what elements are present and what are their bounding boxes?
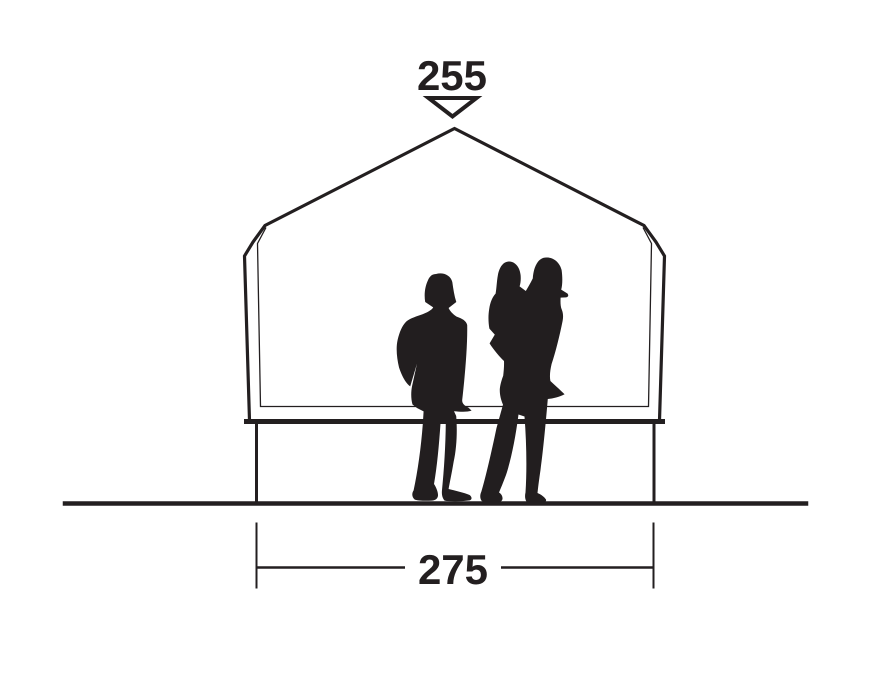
diagram-canvas: 255 275 [0, 0, 885, 682]
tent-dimension-diagram: 255 275 [0, 0, 885, 682]
width-dimension: 275 [257, 523, 654, 594]
family-silhouette [397, 257, 569, 502]
down-triangle-arrow-icon [429, 98, 477, 117]
adult-carrying-child-silhouette-icon [480, 257, 568, 502]
height-dimension-label: 255 [417, 52, 487, 99]
height-dimension: 255 [417, 52, 487, 117]
width-dimension-label: 275 [418, 546, 488, 593]
standing-person-silhouette-icon [397, 273, 472, 501]
